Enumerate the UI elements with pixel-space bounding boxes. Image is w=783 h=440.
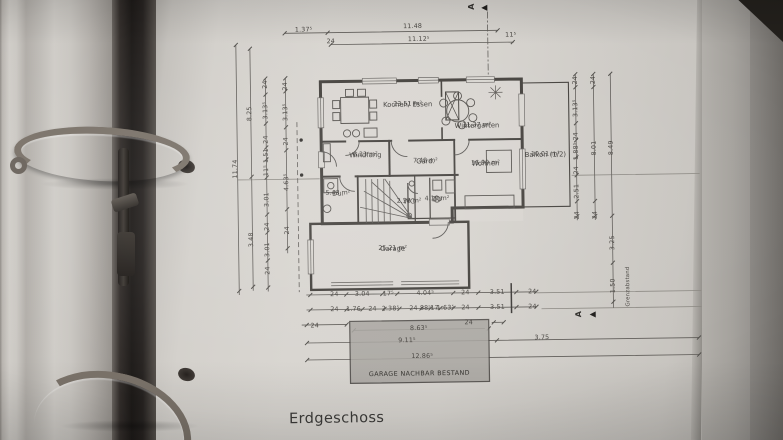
dim-label: 24 bbox=[573, 166, 580, 175]
boundary-distance-label: Grenzabstand bbox=[625, 266, 632, 306]
dim-label: 24 bbox=[574, 211, 581, 220]
dim-label: 24 bbox=[330, 306, 339, 313]
dim-label: 11⁵ bbox=[505, 32, 516, 39]
dim-label: 24 bbox=[592, 211, 599, 220]
dim-label: 1.63⁵ bbox=[437, 304, 455, 311]
dim-label: 24 bbox=[573, 132, 580, 141]
dim-label: 3.01 bbox=[264, 242, 271, 257]
dim-label: 3.01 bbox=[263, 192, 270, 207]
dim-label: 8.49 bbox=[608, 140, 615, 155]
dim-label: 24 bbox=[528, 303, 537, 310]
dim-label: 24 bbox=[461, 289, 470, 296]
dim-label: 12.86⁵ bbox=[411, 353, 433, 360]
dim-label: 24 bbox=[264, 266, 271, 275]
dim-label: 1.51 bbox=[263, 148, 270, 163]
dim-label: 11.48 bbox=[403, 23, 422, 30]
binder-photo: 1.37⁵ 11.48 24 11.12⁵ 11⁵ 11.74 8.25 3.4… bbox=[0, 0, 783, 440]
dim-label: 24 bbox=[264, 222, 271, 231]
dim-label: 9.11⁵ bbox=[398, 337, 416, 344]
dim-label: 1.76 bbox=[346, 306, 361, 313]
section-arrow-icon: ◀ bbox=[589, 309, 595, 318]
section-arrow-icon: ◀ bbox=[481, 3, 487, 12]
dim-label: 11.74 bbox=[232, 159, 239, 178]
dim-label: 1.37⁵ bbox=[295, 26, 313, 33]
dim-label: 24 bbox=[368, 306, 377, 313]
dim-label: 24 bbox=[262, 80, 269, 89]
dim-label: 24 bbox=[464, 319, 473, 326]
dim-label: 8.25 bbox=[246, 106, 253, 121]
dim-label: 24 bbox=[284, 226, 291, 235]
dim-label: 11⁵ bbox=[263, 165, 270, 176]
dim-label: 2.51 bbox=[573, 184, 580, 199]
page-title: Erdgeschoss bbox=[289, 410, 385, 427]
binder-lever-clip bbox=[117, 232, 135, 276]
neighbor-garage-label: GARAGE NACHBAR BESTAND bbox=[369, 369, 470, 378]
dim-label: 3.25 bbox=[609, 235, 616, 250]
dim-label: 3.48 bbox=[248, 232, 255, 247]
dim-label: 3.04 bbox=[355, 291, 370, 298]
dim-label: 4.04⁵ bbox=[416, 290, 434, 297]
dim-label: 17⁵ bbox=[383, 290, 394, 297]
dim-label: 3.13⁵ bbox=[572, 99, 579, 117]
dim-label: 24 bbox=[283, 137, 290, 146]
dim-label: 8.63⁵ bbox=[410, 325, 428, 332]
dim-label: 8.01 bbox=[591, 141, 598, 156]
dim-label: 4.63⁵ bbox=[283, 173, 290, 191]
dim-label: 24 bbox=[461, 304, 470, 311]
section-marker-letter: A bbox=[467, 4, 476, 10]
dim-label: 3.75 bbox=[534, 334, 549, 341]
dim-label: 24 bbox=[327, 38, 336, 45]
dim-label: 24 bbox=[572, 76, 579, 85]
dim-label: 24 bbox=[310, 322, 319, 329]
dim-label: 11.12⁵ bbox=[408, 36, 430, 43]
dim-label: 24 bbox=[528, 288, 537, 295]
dim-label: 24 bbox=[263, 135, 270, 144]
dim-label: 2.38⁵ bbox=[382, 305, 400, 312]
dim-label: 1.50 bbox=[610, 278, 617, 293]
dim-label: 3.13⁵ bbox=[262, 102, 269, 120]
binder-ring-top-end bbox=[10, 157, 27, 174]
section-marker-letter: A bbox=[574, 311, 583, 317]
dim-label: 3.13⁵ bbox=[282, 103, 289, 121]
dim-label: 1.88⁵ bbox=[573, 142, 580, 160]
dim-label: 24 bbox=[590, 76, 597, 85]
dim-label: 3.51 bbox=[490, 304, 505, 311]
dim-label: 24 bbox=[409, 305, 418, 312]
dim-label: 24 bbox=[330, 291, 339, 298]
dim-label: 24 bbox=[282, 82, 289, 91]
dim-label: 3.51 bbox=[490, 289, 505, 296]
